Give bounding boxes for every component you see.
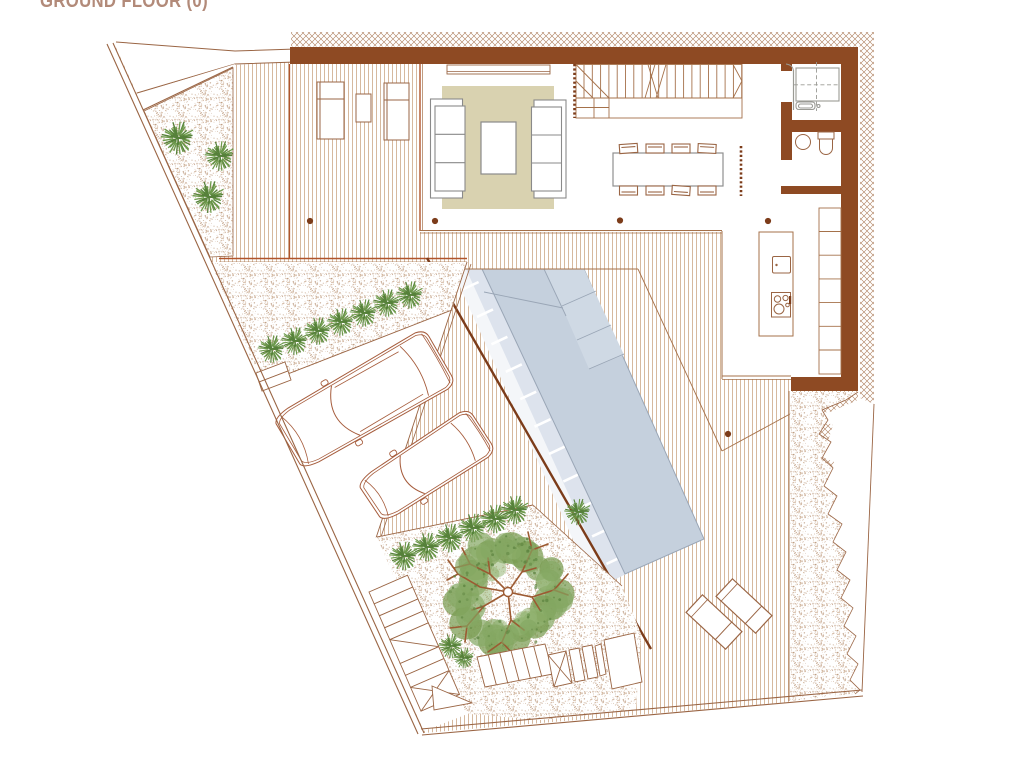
svg-text:GROUND FLOOR (0): GROUND FLOOR (0) xyxy=(40,0,208,12)
